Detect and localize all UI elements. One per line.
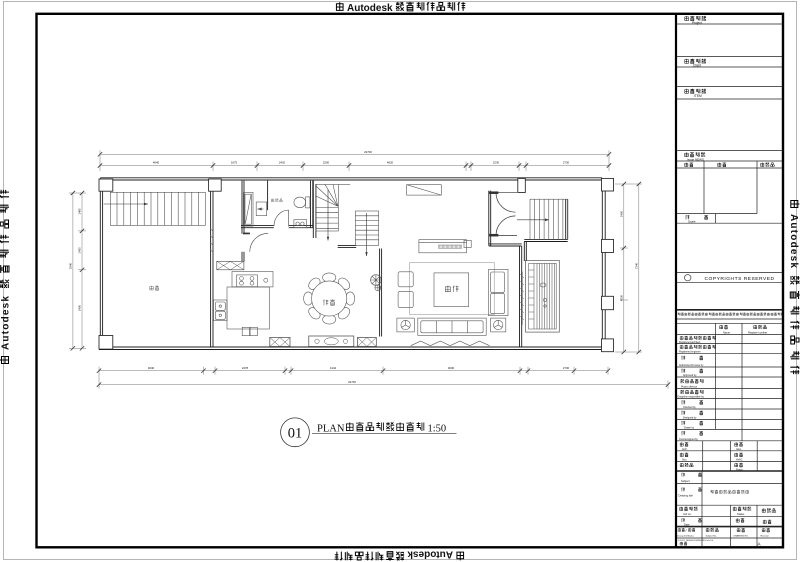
svg-text:A: A bbox=[758, 541, 762, 546]
svg-text:Registered architect: Registered architect bbox=[679, 341, 701, 344]
svg-text:Stru.: Stru. bbox=[682, 459, 687, 462]
svg-text:Issue NEWS: Issue NEWS bbox=[687, 157, 704, 161]
svg-text:2402: 2402 bbox=[279, 161, 286, 165]
svg-text:Project: Project bbox=[692, 21, 702, 25]
svg-text:Scale: Scale bbox=[688, 220, 696, 224]
svg-text:2730: 2730 bbox=[563, 161, 570, 165]
svg-text:Authorized for issue by: Authorized for issue by bbox=[679, 364, 704, 367]
svg-text:Registered engineer: Registered engineer bbox=[679, 351, 701, 354]
svg-text:DRAWING NO.: DRAWING NO. bbox=[734, 535, 749, 538]
svg-text:Client: Client bbox=[693, 64, 701, 68]
svg-text:Subject: Subject bbox=[681, 479, 690, 483]
svg-text:ITEM: ITEM bbox=[694, 94, 702, 98]
svg-text:Subject No.: Subject No. bbox=[706, 535, 718, 538]
svg-text:22700: 22700 bbox=[348, 380, 356, 384]
svg-text:Discip./im/Status: Discip./im/Status bbox=[678, 535, 695, 538]
svg-text:J: ROOT DESIGN 2008WORK F.a.b.: J: ROOT DESIGN 2008WORK F.a.b.3.4 bbox=[678, 540, 714, 542]
svg-text:5340: 5340 bbox=[69, 262, 73, 269]
svg-text:2730: 2730 bbox=[563, 366, 570, 370]
svg-text:4640: 4640 bbox=[148, 366, 155, 370]
svg-text:01: 01 bbox=[288, 426, 303, 442]
svg-text:2230: 2230 bbox=[493, 161, 500, 165]
svg-text:1485: 1485 bbox=[78, 208, 82, 215]
svg-text:Arch.: Arch. bbox=[682, 448, 688, 451]
svg-text:Job no.: Job no. bbox=[683, 512, 692, 516]
svg-text:Date: Date bbox=[684, 523, 690, 527]
svg-text:Drawing title: Drawing title bbox=[679, 493, 694, 497]
svg-text:Approved by: Approved by bbox=[683, 374, 697, 377]
svg-text:Checked by: Checked by bbox=[683, 406, 696, 409]
svg-text:4640: 4640 bbox=[153, 161, 160, 165]
svg-text:4530: 4530 bbox=[619, 294, 623, 301]
svg-text:2400: 2400 bbox=[619, 210, 623, 217]
svg-text:PLAN: PLAN bbox=[317, 423, 345, 434]
svg-text:Elec.: Elec. bbox=[737, 448, 743, 451]
svg-text:7340: 7340 bbox=[634, 262, 638, 269]
svg-text:Countersigned by: Countersigned by bbox=[679, 438, 699, 441]
svg-text:Designed by: Designed by bbox=[683, 417, 697, 420]
svg-text:2478: 2478 bbox=[242, 366, 249, 370]
svg-text:Status: Status bbox=[737, 512, 745, 516]
svg-text:1455: 1455 bbox=[78, 247, 82, 254]
svg-text:Power: Power bbox=[736, 468, 743, 471]
svg-text:/: / bbox=[685, 528, 687, 532]
svg-text:4600: 4600 bbox=[448, 366, 455, 370]
svg-text:COPYRIGHTS RESERVED: COPYRIGHTS RESERVED bbox=[705, 276, 775, 282]
svg-text:1675: 1675 bbox=[231, 161, 238, 165]
svg-text:2250: 2250 bbox=[323, 161, 330, 165]
svg-text:Drawn by: Drawn by bbox=[684, 427, 695, 430]
svg-text:22700: 22700 bbox=[364, 150, 372, 154]
svg-text:Project director: Project director bbox=[681, 386, 697, 389]
svg-text:4620: 4620 bbox=[387, 161, 394, 165]
svg-text:Revision: Revision bbox=[761, 536, 770, 538]
svg-text:Register number: Register number bbox=[748, 331, 767, 335]
svg-text:2400: 2400 bbox=[78, 304, 82, 311]
svg-text:1:50: 1:50 bbox=[428, 423, 447, 434]
svg-text:Name: Name bbox=[723, 331, 730, 335]
svg-text:4142: 4142 bbox=[330, 366, 337, 370]
svg-text:HVAC: HVAC bbox=[736, 459, 743, 462]
svg-text:Discipline responsible by: Discipline responsible by bbox=[678, 396, 705, 399]
